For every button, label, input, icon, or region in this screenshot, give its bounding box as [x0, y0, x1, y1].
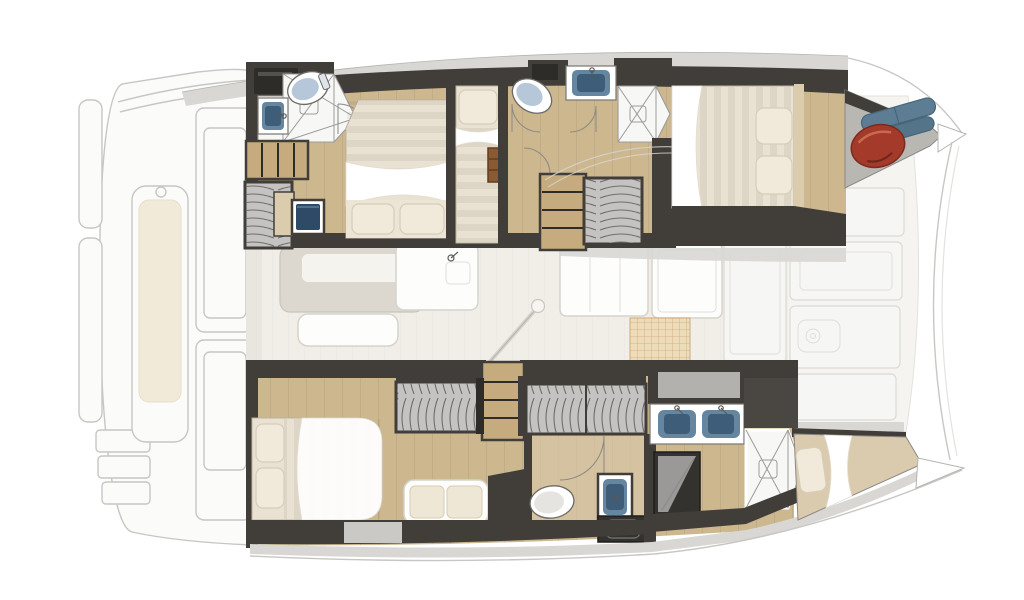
bench-seat [404, 480, 488, 524]
bunk-pillow [459, 90, 497, 124]
crossbeam [933, 142, 959, 460]
double-bed [346, 100, 448, 238]
pillow [352, 204, 394, 234]
hull-top [182, 52, 848, 262]
wardrobe [526, 374, 646, 434]
catamaran-floorplan [0, 0, 1024, 600]
wardrobe [396, 372, 478, 432]
below-bed-wall [672, 206, 846, 246]
pillow [756, 108, 792, 144]
walkway-step [344, 522, 402, 543]
pillow [256, 424, 284, 462]
steps [246, 141, 308, 179]
bunk-forward-wall [498, 84, 508, 246]
sink-unit [598, 474, 632, 520]
pillow [756, 156, 792, 194]
bed-headboard [794, 84, 804, 208]
hull-bottom-top-wall-mid [520, 360, 652, 376]
dark-wall-over-shower [614, 58, 672, 86]
mast-post [532, 300, 545, 313]
galley-island [396, 243, 478, 310]
stairs [482, 362, 524, 440]
saloon-aft-shadow [246, 243, 262, 364]
forepeak-berth [792, 428, 964, 520]
bow-tip-bottom [916, 458, 964, 488]
pillow [400, 204, 444, 234]
double-bed [252, 418, 382, 520]
window-band [658, 372, 740, 398]
bed-bunk-divider-wall [446, 84, 456, 246]
dark-corner [744, 378, 798, 428]
stairs [540, 174, 586, 250]
bench-side-wall [488, 468, 530, 524]
bench-cushion [410, 486, 444, 518]
crossbeam-arc-outer [942, 146, 959, 456]
wardrobe [584, 178, 642, 244]
cockpit-bench-cushion [139, 200, 181, 402]
bunk-cabin [456, 84, 508, 246]
bed-throw [297, 418, 382, 520]
shower-side-wall [652, 138, 672, 246]
mid-bottom [518, 374, 648, 542]
shower-stall [654, 452, 700, 516]
hull-bottom-lower-wall [250, 520, 652, 544]
transom-platform-top [79, 100, 102, 228]
dining-table-inset [302, 254, 408, 282]
bench-cushion [447, 486, 482, 518]
transom-platform-bottom [79, 238, 102, 422]
vanity-unit [292, 200, 324, 234]
berth-pillow [795, 446, 827, 493]
counter-dark-inset [532, 64, 558, 80]
toilet-room-wall [524, 434, 532, 526]
sunpad-panel [790, 374, 896, 420]
aft-cockpit-ghost [79, 69, 252, 545]
sink-unit [258, 98, 288, 134]
bow-tip-top [938, 124, 966, 152]
bunk-stripes [457, 128, 499, 242]
sink-unit [566, 66, 616, 100]
pillow [256, 468, 284, 508]
saloon-bench [298, 314, 398, 346]
shelf-divider [476, 378, 484, 434]
double-sink-vanity [650, 404, 744, 444]
stove-grid [630, 318, 690, 362]
